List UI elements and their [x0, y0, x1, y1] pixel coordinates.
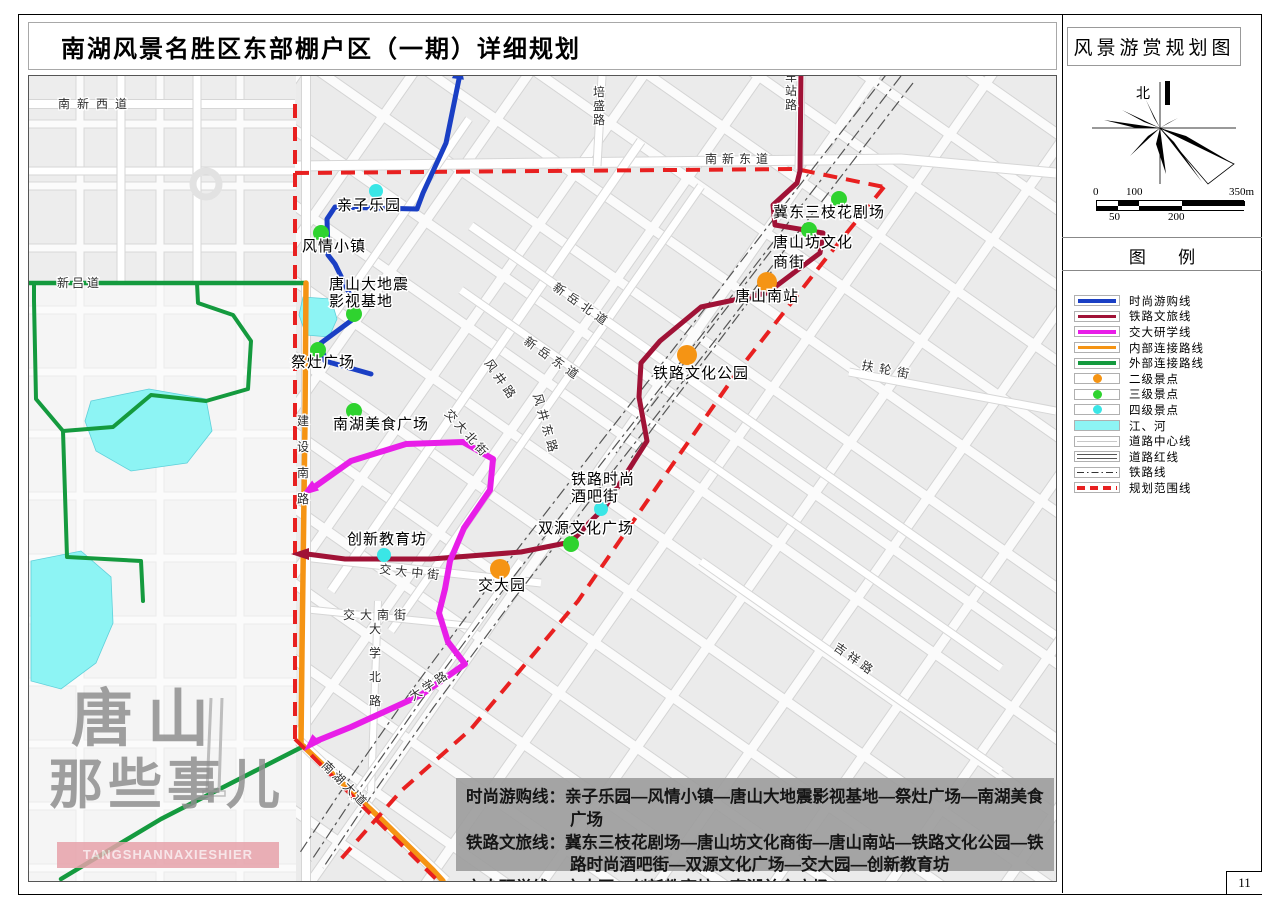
scale-segment [1139, 206, 1182, 211]
street-label: 交大南街 [343, 607, 411, 622]
scale-segment [1118, 206, 1139, 211]
legend-item: 二级景点 [1074, 371, 1256, 387]
poi-label: 南湖美食广场 [333, 416, 429, 433]
legend-item: 交大研学线 [1074, 324, 1256, 340]
scale-label-50: 50 [1109, 211, 1120, 223]
legend-label: 三级景点 [1129, 386, 1179, 402]
route-description: 时尚游购线：亲子乐园—风情小镇—唐山大地震影视基地—祭灶广场—南湖美食广场 [466, 786, 1044, 832]
street-label: 南新东道 [705, 151, 773, 166]
north-label: 北 [1136, 86, 1150, 102]
poi-label: 铁路文化公园 [653, 365, 749, 382]
scale-bar: 0 100 350m 50 200 [1096, 186, 1244, 225]
watermark-text-2: 那些事儿 [49, 757, 285, 814]
route-description-label: 时尚游购线： [466, 788, 565, 806]
route-description-label: 铁路文旅线： [466, 834, 565, 852]
poi-label: 交大园 [478, 576, 526, 594]
legend-label: 四级景点 [1129, 402, 1179, 418]
poi-label: 唐山南站 [735, 288, 799, 305]
legend-item: 规划范围线 [1074, 480, 1256, 496]
poi-label: 铁路时尚 [571, 471, 635, 488]
legend-label: 道路红线 [1129, 449, 1179, 465]
poi-label: 双源文化广场 [538, 520, 634, 537]
legend-swatch-double [1074, 451, 1120, 462]
page: 南湖风景名胜区东部棚户区（一期）详细规划 [0, 0, 1280, 908]
route-description: 铁路文旅线：冀东三枝花剧场—唐山坊文化商街—唐山南站—铁路文化公园—铁路时尚酒吧… [466, 832, 1044, 878]
street-label: 培盛路 [593, 84, 605, 127]
legend-swatch-dashdot [1074, 467, 1120, 478]
street-label: 车站路 [785, 76, 797, 112]
poi-label: 亲子乐园 [337, 197, 401, 214]
poi-label: 创新教育坊 [347, 531, 427, 548]
poi-label: 唐山大地震 [329, 276, 409, 293]
legend-label: 交大研学线 [1129, 324, 1192, 340]
title-box: 南湖风景名胜区东部棚户区（一期）详细规划 [28, 22, 1057, 70]
legend-rule-top [1062, 237, 1262, 238]
legend-label: 内部连接路线 [1129, 340, 1204, 356]
page-number-box: 11 [1226, 871, 1262, 894]
scale-label-0: 0 [1093, 186, 1099, 198]
legend-item: 时尚游购线 [1074, 293, 1256, 309]
legend-swatch-reddash [1074, 482, 1120, 493]
legend-item: 四级景点 [1074, 402, 1256, 418]
watermark-subtitle: TANGSHANNAXIESHIER [57, 842, 279, 868]
legend-swatch-circle [1074, 404, 1120, 415]
page-number: 11 [1238, 875, 1251, 891]
legend-swatch-line [1074, 358, 1120, 369]
legend-label: 规划范围线 [1129, 480, 1192, 496]
map-name-box: 风景游赏规划图 [1067, 27, 1241, 66]
legend-label: 铁路线 [1129, 464, 1167, 480]
legend-title: 图 例 [1062, 243, 1262, 268]
poi-dot-level3 [563, 536, 579, 552]
legend-swatch-thin [1074, 436, 1120, 447]
legend-item: 内部连接路线 [1074, 340, 1256, 356]
map-area: 南新西道南新东道新吕道培盛路车站路建设南路大学北路新岳北道新岳东道风井路风井东路… [28, 75, 1057, 882]
poi-label: 酒吧街 [571, 488, 619, 505]
poi-dot-level2 [677, 345, 697, 365]
legend-item: 三级景点 [1074, 387, 1256, 403]
watermark-text-1: 唐山 [71, 688, 285, 753]
route-description-label: 交大研学线： [466, 879, 565, 882]
scale-bottom-labels: 50 200 [1096, 211, 1244, 225]
legend-label: 时尚游购线 [1129, 293, 1192, 309]
poi-label: 祭灶广场 [291, 354, 355, 371]
legend-item: 道路中心线 [1074, 433, 1256, 449]
legend-item: 铁路线 [1074, 465, 1256, 481]
legend-swatch-line [1074, 342, 1120, 353]
legend-rule-bottom [1062, 270, 1262, 271]
legend-label: 铁路文旅线 [1129, 308, 1192, 324]
poi-label: 影视基地 [329, 293, 393, 310]
street-label: 南新西道 [58, 96, 134, 111]
legend-swatch-circle [1074, 389, 1120, 400]
legend-label: 江、河 [1129, 418, 1167, 434]
poi-label: 商街 [773, 254, 805, 271]
route-description: 交大研学线：交大园—创新教育坊—南湖美食广场 [466, 877, 1044, 882]
compass-rose: 北 [1088, 76, 1240, 188]
legend-label: 外部连接路线 [1129, 355, 1204, 371]
legend-swatch-circle [1074, 373, 1120, 384]
legend-item: 江、河 [1074, 418, 1256, 434]
poi-dot-level4 [377, 548, 391, 562]
scale-segment [1182, 206, 1245, 211]
scale-label-200: 200 [1168, 211, 1185, 223]
legend-swatch-water [1074, 420, 1120, 431]
scale-top-labels: 0 100 350m [1096, 186, 1244, 200]
legend-label: 道路中心线 [1129, 433, 1192, 449]
scale-bar-blocks [1096, 200, 1244, 211]
page-title: 南湖风景名胜区东部棚户区（一期）详细规划 [61, 29, 581, 64]
poi-label: 风情小镇 [302, 238, 366, 255]
legend-item: 道路红线 [1074, 449, 1256, 465]
panel-divider [1062, 14, 1063, 893]
legend-label: 二级景点 [1129, 371, 1179, 387]
street-label: 新吕道 [57, 275, 102, 290]
legend-item: 铁路文旅线 [1074, 309, 1256, 325]
map-name: 风景游赏规划图 [1073, 33, 1234, 60]
legend-swatch-line [1074, 295, 1120, 306]
poi-label: 冀东三枝花剧场 [773, 204, 885, 221]
poi-dot-level2 [490, 559, 510, 579]
poi-label: 唐山坊文化 [773, 234, 853, 251]
watermark: 唐山 那些事儿 TANGSHANNAXIESHIER [49, 688, 285, 868]
poi-dot-level4 [369, 184, 383, 198]
route-description-box: 时尚游购线：亲子乐园—风情小镇—唐山大地震影视基地—祭灶广场—南湖美食广场铁路文… [456, 778, 1054, 871]
legend-swatch-line [1074, 311, 1120, 322]
legend-list: 时尚游购线铁路文旅线交大研学线内部连接路线外部连接路线二级景点三级景点四级景点江… [1074, 293, 1256, 496]
scale-label-350m: 350m [1229, 186, 1254, 198]
north-bar [1165, 81, 1170, 105]
scale-label-100: 100 [1126, 186, 1143, 198]
legend-swatch-line [1074, 326, 1120, 337]
legend-item: 外部连接路线 [1074, 355, 1256, 371]
scale-segment [1097, 206, 1118, 211]
